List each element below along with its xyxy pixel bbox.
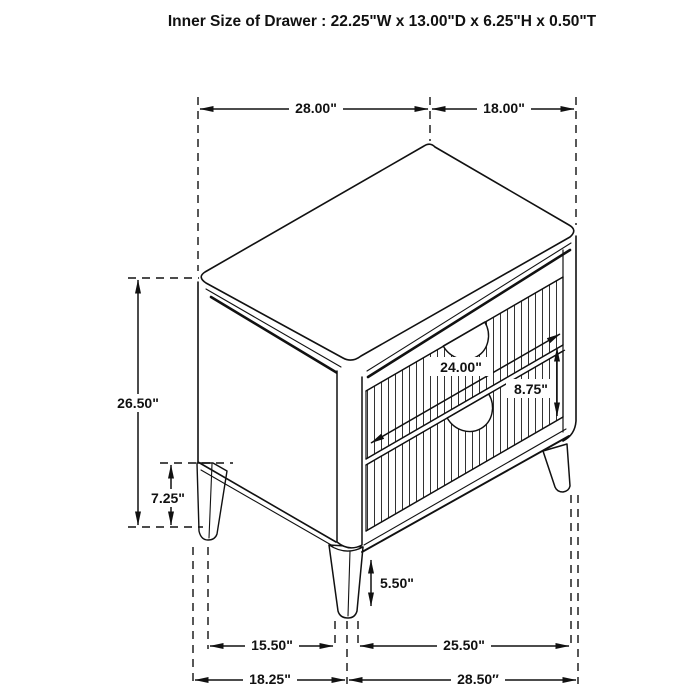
dim-leg-span-side-label: 15.50" [251, 637, 293, 653]
dim-front-leg-height: 5.50" [371, 560, 414, 606]
dim-top-width-label: 28.00" [295, 100, 337, 116]
right-stile [563, 236, 576, 441]
dim-overall-height: 26.50" [108, 280, 168, 525]
right-leg [543, 444, 570, 492]
corner-post [337, 371, 362, 548]
dim-drawer-front-height-label: 8.75" [514, 381, 548, 397]
dim-overall-height-label: 26.50" [117, 395, 159, 411]
dim-leg-span-front-label: 25.50" [443, 637, 485, 653]
dim-floor-span-side-label: 18.25" [249, 671, 291, 687]
left-leg [197, 463, 227, 540]
dim-drawer-front-width-label: 24.00" [440, 359, 482, 375]
dim-floor-span-front: 28.50″ [349, 671, 576, 688]
dim-side-leg-height-label: 7.25" [151, 490, 185, 506]
dim-floor-span-side: 18.25" [195, 671, 345, 688]
dim-front-leg-height-label: 5.50" [380, 575, 414, 591]
dim-top-width: 28.00" [200, 100, 428, 117]
dim-side-leg-height: 7.25" [143, 465, 193, 525]
dim-top-depth-label: 18.00" [483, 100, 525, 116]
nightstand-diagram-svg: 28.00" 18.00" 26.50" 7.25" 24.00" 8.75" [0, 0, 700, 700]
front-leg [329, 545, 363, 618]
dim-floor-span-front-label: 28.50″ [457, 671, 499, 687]
diagram-title: Inner Size of Drawer : 22.25"W x 13.00"D… [168, 13, 597, 30]
dim-leg-span-side: 15.50" [210, 637, 333, 654]
dim-top-depth: 18.00" [432, 100, 574, 117]
furniture-dimension-diagram: 28.00" 18.00" 26.50" 7.25" 24.00" 8.75" [0, 0, 700, 700]
dim-leg-span-front: 25.50" [360, 637, 569, 654]
